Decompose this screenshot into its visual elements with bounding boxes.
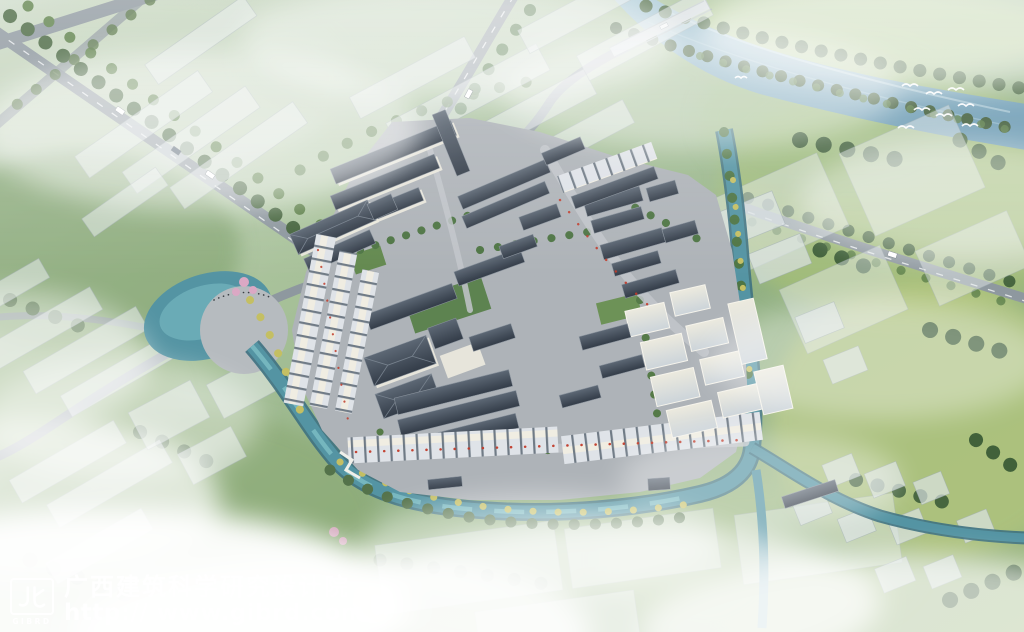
gibrd-glyph-icon (18, 585, 46, 609)
watermark-url: http:// www.gibrd.com (64, 601, 365, 626)
gibrd-logo-caption: GIBRD (12, 617, 51, 626)
watermark-text: 广西建筑科学研究设计院 http:// www.gibrd.com (64, 575, 365, 626)
gibrd-logo: GIBRD (10, 578, 54, 626)
watermark-org-name: 广西建筑科学研究设计院 (64, 575, 365, 601)
atmospheric-haze (0, 0, 1024, 632)
aerial-rendering (0, 0, 1024, 632)
gibrd-logo-icon (10, 578, 54, 615)
aerial-rendering-stage: GIBRD 广西建筑科学研究设计院 http:// www.gibrd.com (0, 0, 1024, 632)
watermark: GIBRD 广西建筑科学研究设计院 http:// www.gibrd.com (10, 575, 365, 626)
